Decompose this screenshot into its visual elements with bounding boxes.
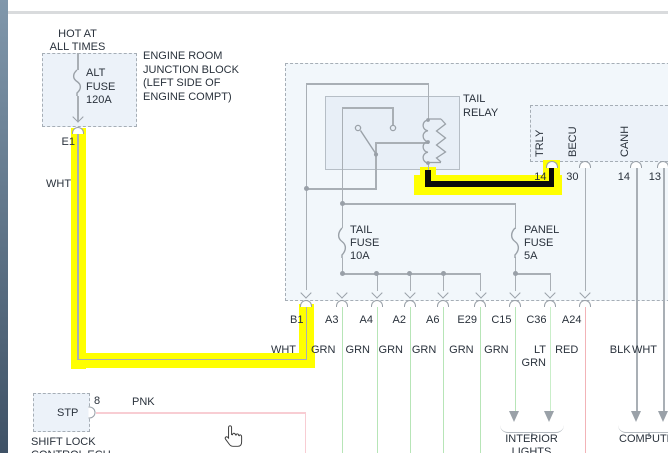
tail-fuse-icon (336, 227, 348, 259)
b1-pin-label: B1 (278, 314, 304, 327)
computer-brace (618, 425, 668, 433)
wht-wire-core-v (77, 128, 79, 360)
c36-wire-color: LTGRN (512, 344, 546, 370)
a6-pin-label: A6 (414, 314, 440, 327)
becu-wire (585, 168, 587, 291)
trly-signal-label: TRLY (534, 111, 546, 157)
pnk-wire-vertical (305, 412, 307, 453)
ecu-connector-box (530, 105, 668, 162)
pin13-connector-bump (657, 161, 668, 168)
c15-destination-arrow (509, 411, 519, 422)
wht-wire-core-h (77, 359, 307, 361)
e29-grn-wire (480, 307, 482, 453)
tail-fuse-wire-top (342, 203, 344, 228)
interior-lights-destination-label: INTERIORLIGHTS (501, 433, 562, 453)
canh-pin-number: 14 (610, 171, 630, 184)
left-panel-edge (0, 0, 8, 453)
a2-grn-wire (410, 307, 412, 453)
tail-fuse-label: TAILFUSE10A (350, 224, 379, 263)
relay-switch-and-coil-icon (325, 96, 460, 170)
pnk-wire-horizontal (96, 412, 306, 414)
junction-dot (513, 271, 518, 276)
c36-pin-label: C36 (521, 314, 547, 327)
e29-wire-color: GRN (440, 344, 474, 357)
alt-fuse-wire-top (77, 53, 79, 70)
wht-destination-arrow (658, 411, 668, 422)
a4-grn-wire (377, 307, 379, 453)
a2-pin-label: A2 (380, 314, 406, 327)
wiring-diagram-canvas[interactable]: HOT ATALL TIMES ALTFUSE120A ENGINE ROOMJ… (0, 0, 668, 453)
pin13-wht-wire (663, 168, 665, 412)
hot-at-all-times-label: HOT ATALL TIMES (40, 28, 115, 54)
junction-block-note: ENGINE ROOMJUNCTION BLOCK(LEFT SIDE OFEN… (143, 50, 239, 104)
a24-wire-color: RED (544, 344, 578, 357)
a24-red-wire (585, 307, 587, 453)
pnk-wire-label: PNK (132, 396, 155, 409)
junction-dot (304, 186, 309, 191)
canh-signal-label: CANH (619, 111, 631, 157)
trly-connector-bump (546, 161, 558, 168)
computer-destination-label: COMPUTER (619, 433, 668, 446)
a24-connector-bump (579, 300, 591, 307)
becu-connector-bump (579, 161, 591, 168)
junction-dot (340, 201, 345, 206)
a6-wire-color: GRN (402, 344, 436, 357)
shift-lock-ecu-label: SHIFT LOCKCONTROL ECU (31, 436, 111, 453)
a24-pin-label: A24 (556, 314, 582, 327)
a6-grn-wire (443, 307, 445, 453)
stp-box-label: STP (57, 407, 78, 420)
a4-pin-label: A4 (347, 314, 373, 327)
becu-pin-number: 30 (559, 171, 579, 184)
c36-destination-arrow (544, 411, 554, 422)
relay-top-path (306, 83, 430, 85)
pin13-pin-number: 13 (641, 171, 661, 184)
stp-connector-bump (89, 407, 96, 419)
a3-grn-wire (342, 307, 344, 453)
a3-pin-label: A3 (313, 314, 339, 327)
c15-wire-color: GRN (475, 344, 509, 357)
alt-fuse-label: ALTFUSE120A (86, 67, 115, 108)
alt-fuse-icon (71, 69, 83, 97)
panel-fuse-label: PANELFUSE5A (524, 224, 559, 263)
junction-dot (441, 271, 446, 276)
e1-pin-label: E1 (50, 136, 75, 149)
wht-wire-label: WHT (46, 178, 71, 191)
panel-fuse-wire-top (515, 204, 517, 229)
fuse-bus-203 (342, 203, 516, 205)
becu-signal-label: BECU (567, 111, 579, 157)
interior-lights-brace (500, 425, 564, 433)
a3-wire-color: GRN (301, 344, 335, 357)
panel-fuse-icon (509, 227, 521, 259)
trly-pin-number: 14 (527, 171, 547, 184)
stp-pin-number: 8 (94, 395, 100, 408)
canh-connector-bump (630, 161, 642, 168)
top-divider (8, 11, 668, 14)
tail-relay-label: TAILRELAY (463, 93, 498, 120)
a2-wire-color: GRN (369, 344, 403, 357)
e29-pin-label: E29 (451, 314, 477, 327)
junction-dot (340, 271, 345, 276)
c36-ltgrn-wire (550, 307, 552, 412)
c36-branch (515, 273, 551, 275)
a6-connector-bump (437, 300, 449, 307)
a4-wire-color: GRN (336, 344, 370, 357)
blk-destination-arrow (631, 411, 641, 422)
canh-blk-wire (636, 168, 638, 412)
b1-wire-color: WHT (262, 344, 296, 357)
hand-cursor-icon (221, 423, 243, 449)
wht13-wire-color: WHT (623, 344, 657, 357)
c15-pin-label: C15 (486, 314, 512, 327)
